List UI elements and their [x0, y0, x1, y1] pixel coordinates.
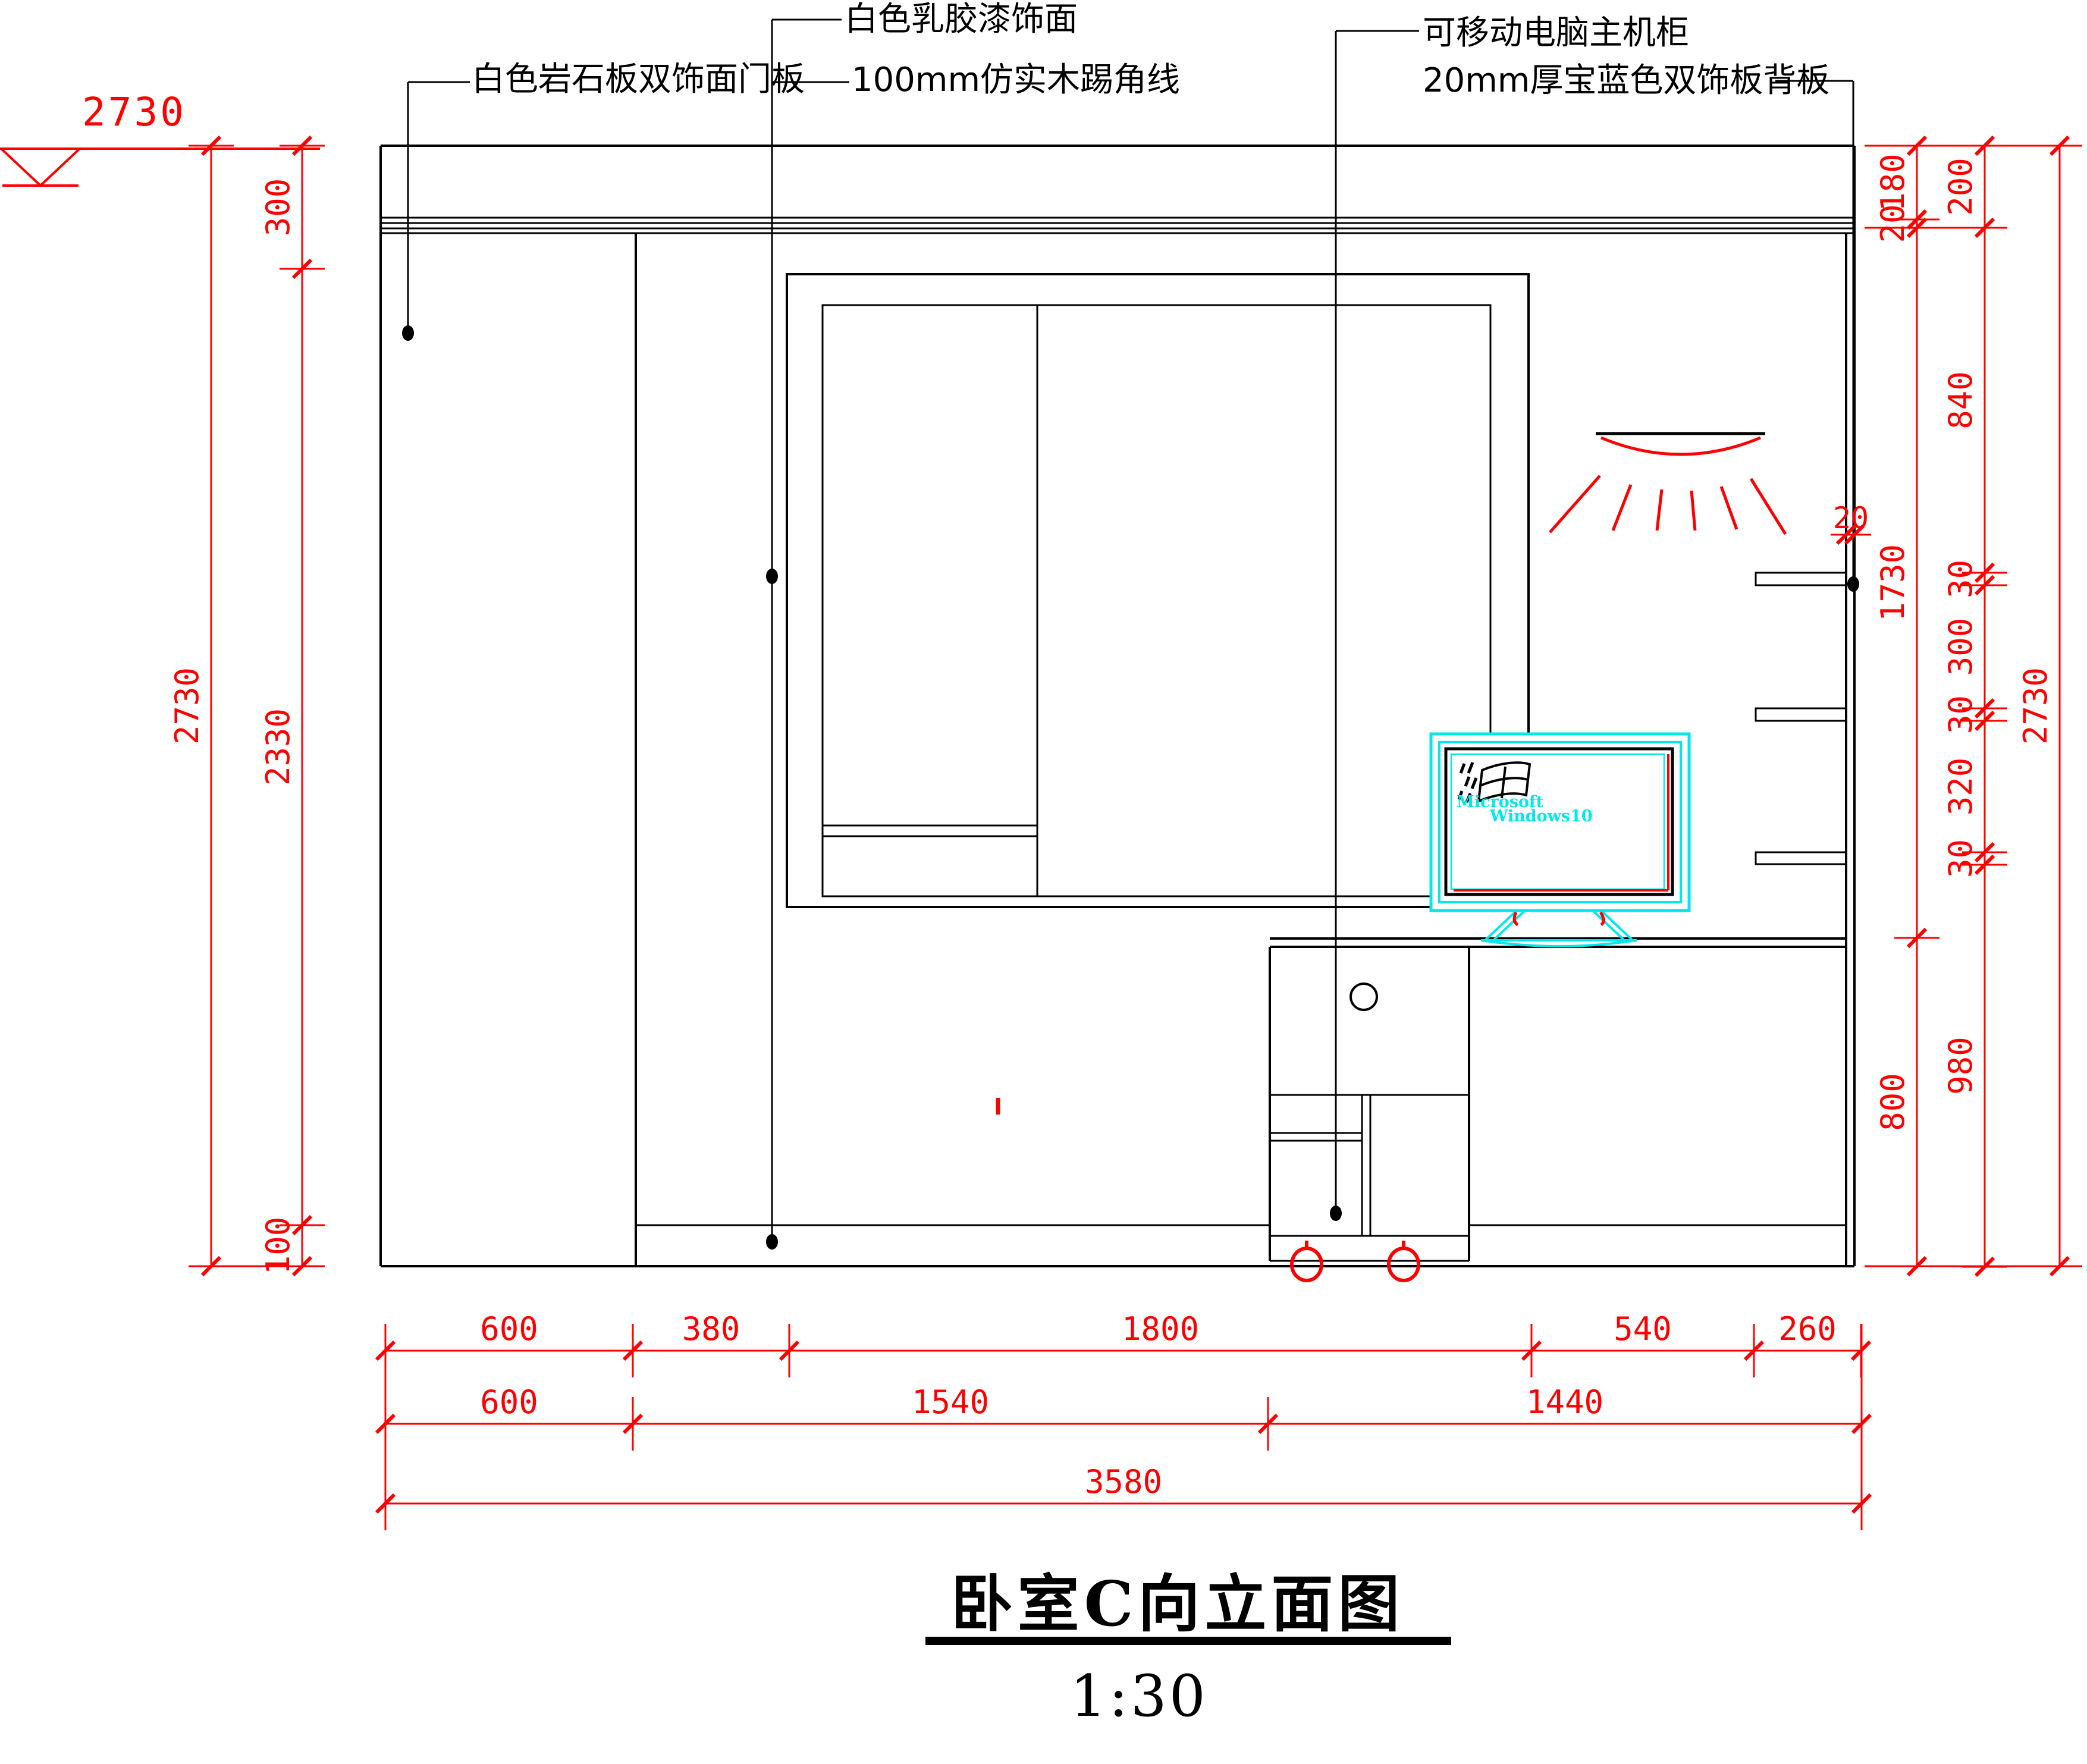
drawer-knob [1351, 984, 1377, 1010]
lamp-ray-4 [1721, 486, 1737, 529]
ceiling-lamp-glow [1601, 438, 1760, 454]
dim-left-overall-value: 2730 [168, 667, 206, 745]
dim-left-chain-value: 100 [259, 1217, 297, 1275]
label-door-panel: 白色岩石板双饰面门板 [472, 61, 805, 98]
title-underline [925, 1637, 1451, 1645]
dim-bottom-row-1-value: 600 [480, 1310, 538, 1348]
dim-right-chain-inner-value: 180 [1874, 153, 1912, 212]
dim-right-chain-inner-value: 20 [1874, 204, 1912, 243]
label-latex-paint: 白色乳胶漆饰面 [845, 1, 1078, 38]
dim-left-chain-value: 2330 [259, 708, 297, 786]
wall-shelf-3 [1756, 852, 1846, 864]
elevation-drawing-canvas: 2730300233010018020173080020084030300303… [0, 0, 2087, 1764]
wall-shelf-1 [1756, 573, 1846, 585]
label-skirting: 100mm仿实木踢角线 [852, 62, 1180, 99]
dim-right-chain-shelves-value: 30 [1942, 560, 1979, 598]
dim-bottom-row-2-value: 1540 [912, 1383, 989, 1421]
monitor-stand-red-clips [1514, 912, 1603, 925]
dim-right-overall-value: 2730 [2017, 667, 2054, 745]
leader-dot-door-panel [402, 325, 414, 341]
leader-dot-pc-cabinet [1330, 1206, 1342, 1221]
lamp-ray-2 [1657, 489, 1662, 531]
dim-bottom-row-1-value: 380 [682, 1310, 740, 1348]
dim-right-chain-shelves-value: 30 [1942, 839, 1979, 878]
monitor-stand-base [1481, 940, 1637, 946]
dim-bottom-row-2-value: 1440 [1526, 1383, 1603, 1421]
dim-bottom-row-1-value: 1800 [1122, 1310, 1199, 1348]
dim-left-chain-value: 300 [259, 178, 297, 237]
dim-right-chain-shelves-value: 980 [1942, 1037, 1979, 1095]
bed-backdrop-outer [787, 274, 1529, 907]
label-pc-cabinet: 可移动电脑主机柜 [1423, 15, 1689, 52]
drawing-title: 卧室C向立面图 [916, 1553, 1439, 1643]
dim-right-chain-shelves-value: 30 [1942, 695, 1979, 734]
caster-wheel-0 [1292, 1248, 1322, 1280]
label-backboard: 20mm厚宝蓝色双饰板背板 [1423, 62, 1829, 99]
dim-bottom-row-1-value: 260 [1778, 1310, 1837, 1348]
dim-right-chain-shelves-value: 320 [1942, 758, 1979, 816]
monitor-brand-line2: Windows10 [1490, 807, 1593, 825]
caster-wheel-1 [1389, 1248, 1418, 1280]
leader-dot-skirting [766, 1234, 778, 1250]
dim-bottom-row-3-value: 3580 [1085, 1463, 1162, 1501]
dim-right-chain-shelves-value: 200 [1942, 158, 1979, 216]
leader-dot-backboard [1847, 576, 1859, 592]
lamp-ray-5 [1751, 479, 1785, 534]
cad-elevation-sheet: 2730300233010018020173080020084030300303… [0, 0, 2087, 1764]
dim-right-chain-shelves-value: 300 [1942, 618, 1979, 676]
dim-bottom-row-2-value: 600 [480, 1383, 538, 1421]
wall-shelf-2 [1756, 708, 1846, 721]
dim-right-chain-shelves-value: 840 [1942, 371, 1979, 429]
elevation-marker-value: 2730 [82, 89, 186, 135]
elevation-marker-triangle [1, 149, 80, 186]
lamp-ray-0 [1550, 476, 1600, 532]
dim-right-chain-inner-value: 1730 [1874, 544, 1912, 622]
monitor-stand-legs [1486, 911, 1632, 940]
leader-dot-latex-paint [766, 569, 778, 584]
dim-right-chain-inner-value: 800 [1874, 1073, 1912, 1131]
drawing-scale: 1:30 [925, 1663, 1353, 1730]
lamp-ray-3 [1691, 491, 1695, 531]
bed-backdrop-inner [823, 305, 1490, 896]
dim-bottom-row-1-value: 540 [1614, 1310, 1672, 1348]
lamp-ray-1 [1613, 485, 1631, 531]
